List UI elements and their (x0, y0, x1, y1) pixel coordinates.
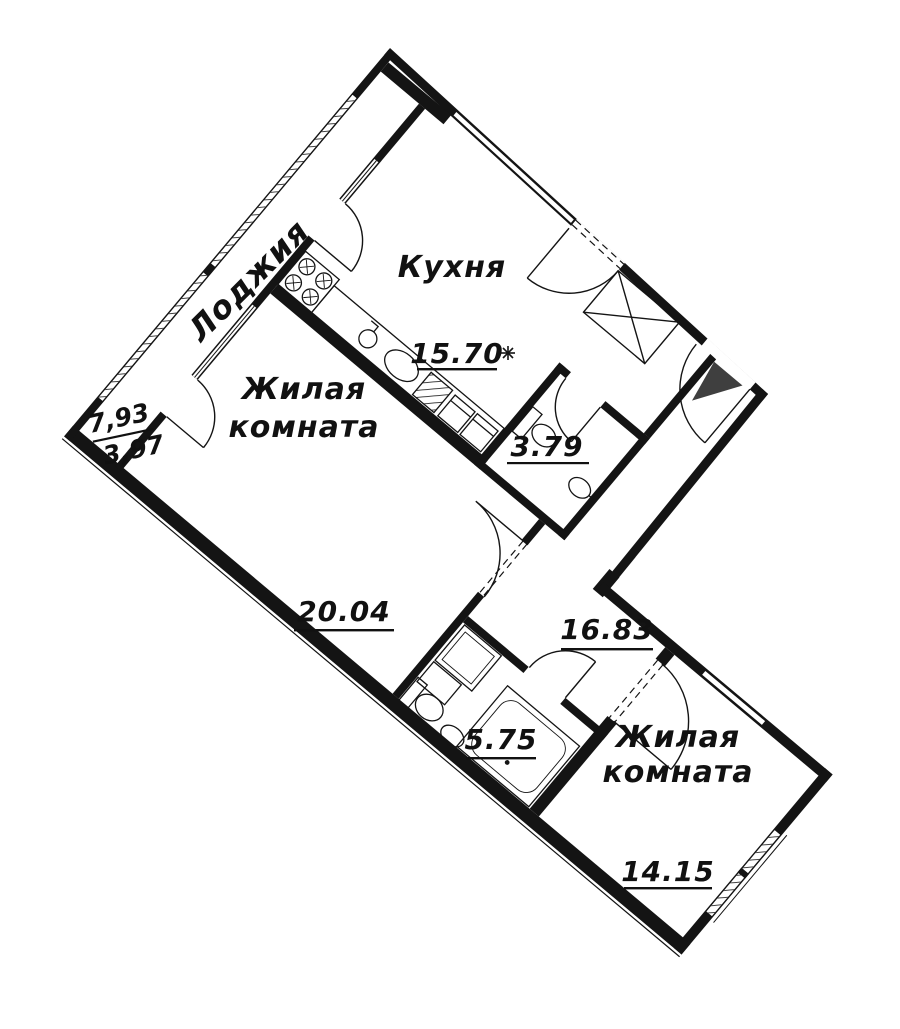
outer-walls (64, 48, 900, 954)
kitchen-area: 15.70 (410, 337, 504, 370)
living2-area-underline (624, 887, 712, 889)
labels-layer: Кухня 15.70 Жилая комната 20.04 3.79 16.… (85, 212, 753, 889)
floor-plan-page: Кухня 15.70 Жилая комната 20.04 3.79 16.… (0, 0, 900, 1029)
kitchen-faucet-icon (355, 326, 380, 351)
kitchen-area-underline (417, 368, 497, 370)
floor-plan-drawing: Кухня 15.70 Жилая комната 20.04 3.79 16.… (0, 0, 900, 1029)
hall-area-underline (561, 648, 653, 650)
living2-label-line1: Жилая (614, 720, 740, 755)
living1-area: 20.04 (297, 595, 391, 628)
door-swing-kitchen (527, 228, 619, 320)
bottom-wall (64, 426, 690, 955)
hall-area: 16.83 (560, 613, 654, 646)
bathtub-drain-icon (504, 759, 511, 766)
loggia-area-reduced: 3,97 (100, 429, 167, 470)
living2-area: 14.15 (621, 855, 715, 888)
wc-area: 3.79 (510, 430, 583, 463)
wc-bottom-wall (474, 458, 570, 540)
kitchen-label: Кухня (398, 250, 506, 285)
living2-label-line2: комната (602, 755, 753, 790)
living1-area-underline (294, 629, 394, 631)
plan-rotated-group (62, 48, 900, 959)
bath-area: 5.75 (464, 723, 537, 756)
interior-walls (115, 104, 840, 820)
living1-label-line2: комната (228, 410, 379, 445)
star-icon (501, 346, 515, 360)
living1-label-line1: Жилая (240, 372, 366, 407)
bath-area-underline (466, 757, 536, 759)
dashed-openings (345, 220, 846, 722)
door-swing-living1-loggia (167, 380, 235, 448)
vent-shaft-icon (583, 271, 679, 364)
wc-area-underline (507, 462, 589, 464)
door-swing-kitchen-loggia (315, 204, 383, 272)
